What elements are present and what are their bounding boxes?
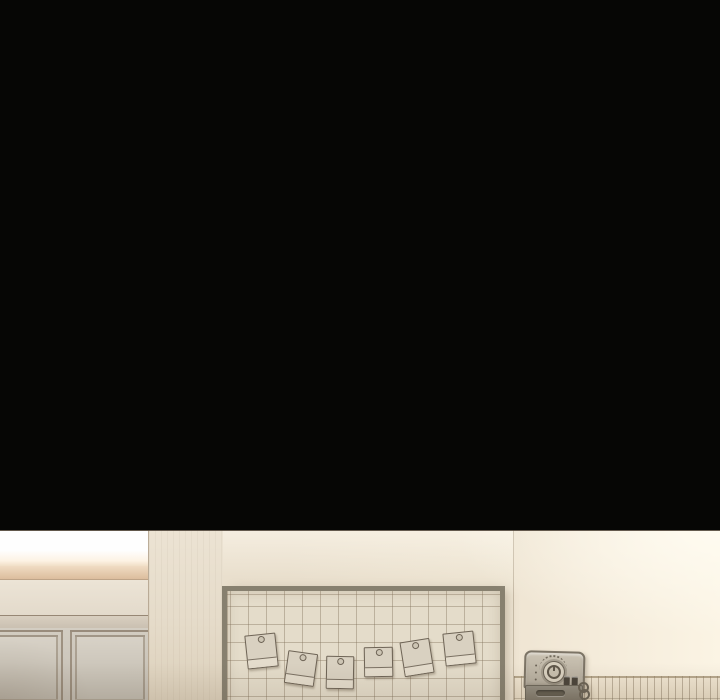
pinned-note-1 bbox=[244, 632, 278, 669]
machine-led-1 bbox=[535, 664, 537, 666]
dial-knob-icon bbox=[543, 661, 566, 684]
pinned-note-5 bbox=[399, 638, 434, 677]
machine-lower-body bbox=[525, 685, 583, 700]
pinned-note-4 bbox=[364, 647, 394, 678]
machine-led-2 bbox=[535, 671, 537, 673]
pinned-note-3 bbox=[326, 656, 355, 689]
machine-slot-handle bbox=[536, 690, 565, 696]
notes-layer bbox=[0, 530, 720, 700]
pinned-note-2 bbox=[284, 650, 318, 687]
machine-led-3 bbox=[535, 678, 537, 680]
coiled-cord-icon bbox=[576, 682, 588, 699]
comic-panel bbox=[0, 0, 720, 700]
room-scene bbox=[0, 530, 720, 700]
panel-edge-line bbox=[0, 530, 720, 531]
dial-knob-inner bbox=[547, 665, 561, 679]
pinned-note-6 bbox=[442, 630, 476, 666]
espresso-machine bbox=[524, 651, 585, 700]
machine-leds bbox=[535, 664, 539, 680]
